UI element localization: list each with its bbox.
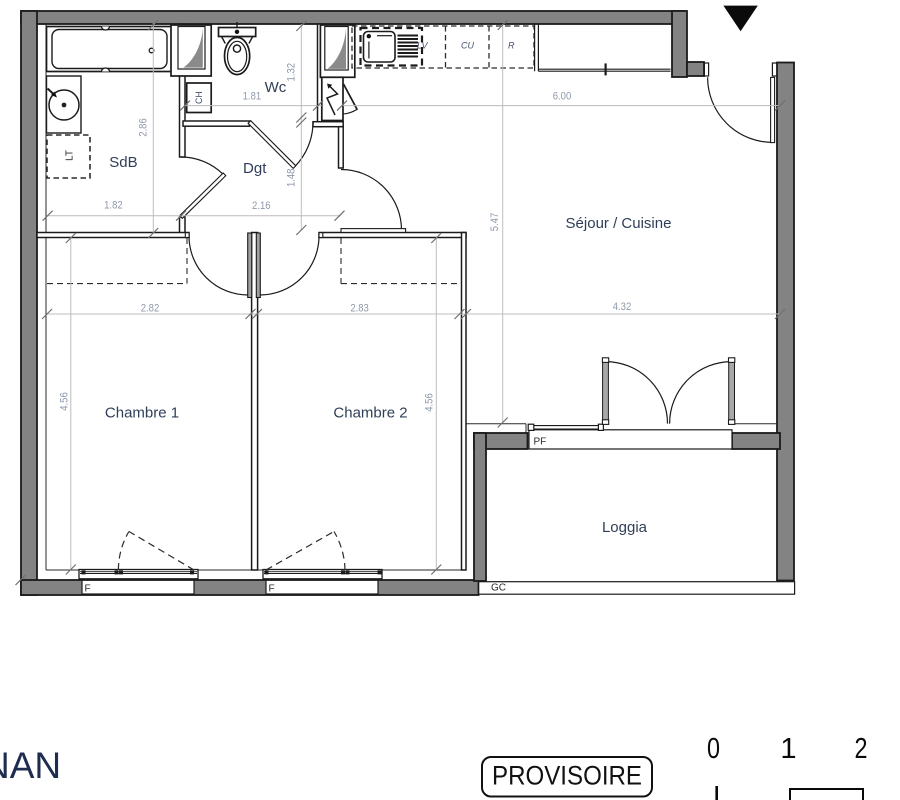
svg-text:Dgt: Dgt xyxy=(243,160,267,177)
svg-text:Chambre 1: Chambre 1 xyxy=(105,405,179,422)
svg-text:5.47: 5.47 xyxy=(489,213,501,232)
svg-text:Wc: Wc xyxy=(265,79,287,96)
svg-text:LV: LV xyxy=(417,41,429,51)
svg-text:2: 2 xyxy=(855,733,868,765)
svg-text:CU: CU xyxy=(461,41,474,51)
svg-text:2.83: 2.83 xyxy=(350,303,369,315)
svg-text:2.82: 2.82 xyxy=(141,303,160,315)
svg-text:1.32: 1.32 xyxy=(285,63,297,82)
svg-text:4.56: 4.56 xyxy=(58,392,70,411)
svg-text:PROVISOIRE: PROVISOIRE xyxy=(492,761,642,791)
svg-text:0: 0 xyxy=(707,733,720,765)
svg-text:6.00: 6.00 xyxy=(553,90,572,102)
svg-text:4.56: 4.56 xyxy=(424,393,436,412)
svg-text:SdB: SdB xyxy=(109,154,137,171)
svg-text:Séjour / Cuisine: Séjour / Cuisine xyxy=(566,215,672,232)
svg-text:2.86: 2.86 xyxy=(138,118,150,137)
svg-text:1.82: 1.82 xyxy=(104,200,123,212)
svg-text:Loggia: Loggia xyxy=(602,519,648,536)
svg-text:1.48: 1.48 xyxy=(286,169,298,188)
svg-text:LT: LT xyxy=(65,150,76,161)
svg-text:CH: CH xyxy=(194,91,204,104)
svg-text:1: 1 xyxy=(780,733,796,765)
svg-text:F: F xyxy=(269,584,275,595)
svg-text:GC: GC xyxy=(491,583,506,594)
svg-text:NAN: NAN xyxy=(0,745,61,786)
svg-text:F: F xyxy=(85,584,91,595)
svg-text:R: R xyxy=(508,41,515,51)
svg-text:PF: PF xyxy=(534,436,547,447)
svg-text:Chambre 2: Chambre 2 xyxy=(333,405,407,422)
svg-text:2.16: 2.16 xyxy=(252,200,271,212)
svg-text:1.81: 1.81 xyxy=(243,90,262,102)
svg-text:4.32: 4.32 xyxy=(613,301,632,313)
